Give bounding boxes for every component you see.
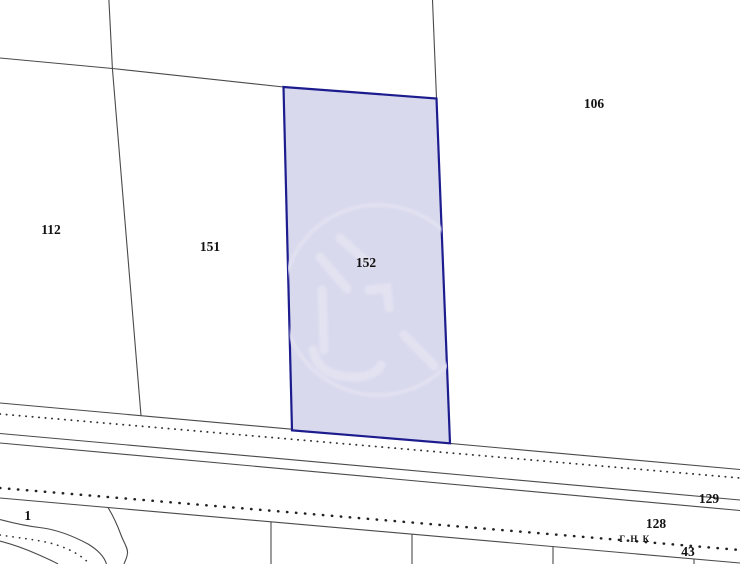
svg-text:152: 152 <box>356 255 377 270</box>
svg-text:112: 112 <box>41 222 61 237</box>
svg-text:1: 1 <box>24 508 31 523</box>
svg-text:151: 151 <box>200 239 221 254</box>
svg-text:106: 106 <box>584 96 605 111</box>
svg-text:Г Н К: Г Н К <box>619 534 650 544</box>
svg-text:128: 128 <box>646 516 667 531</box>
svg-text:129: 129 <box>699 491 720 506</box>
svg-text:43: 43 <box>681 544 695 559</box>
